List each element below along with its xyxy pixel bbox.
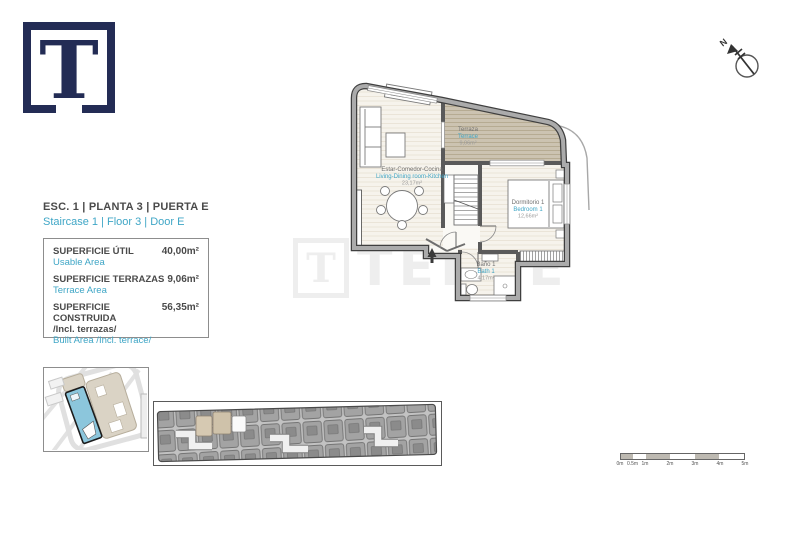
key-plan-drawing	[154, 402, 440, 464]
coffee-table	[386, 133, 405, 157]
scale-bar: 0m 0.5m 1m 2m 3m 4m 5m	[620, 453, 745, 469]
living-area: 23,17m²	[402, 181, 422, 187]
usable-value: 40,00m²	[162, 246, 199, 257]
terrace-slider-door	[442, 122, 445, 148]
scale-segment	[719, 454, 744, 459]
scale-segment	[633, 454, 645, 459]
chair	[415, 187, 424, 196]
built-label-es: SUPERFICIE CONSTRUIDA	[53, 302, 162, 324]
usable-label-en: Usable Area	[53, 257, 199, 268]
logo-bottom-gap	[56, 105, 82, 113]
washbasin	[465, 271, 477, 279]
bath-area: 4,17m²	[477, 276, 494, 282]
terrace-label-en: Terrace Area	[53, 285, 199, 296]
site-plan	[43, 367, 149, 452]
scale-segment	[646, 454, 671, 459]
scale-tick-label: 4m	[717, 461, 724, 467]
toilet	[467, 285, 478, 295]
usable-label-es: SUPERFICIE ÚTIL	[53, 246, 134, 257]
pillow	[553, 184, 562, 202]
scale-segment	[695, 454, 720, 459]
terrace-value: 9,06m²	[167, 274, 199, 285]
floor-plan: Terraza Terrace 9,06m² Estar-Comedor-Coc…	[340, 78, 645, 306]
north-label: N	[718, 37, 729, 49]
site-plan-drawing	[44, 368, 147, 450]
chair	[419, 206, 428, 215]
chair	[398, 221, 407, 230]
plan-sheet: T N ESC. 1 | PLANTA 3 | PUERTA E Stairca…	[0, 0, 800, 533]
terrace-name-es: Terraza	[458, 127, 479, 133]
built-value: 56,35m²	[162, 302, 199, 313]
north-arrow-icon: N	[718, 33, 766, 81]
logo-t-letter: T	[39, 24, 99, 116]
scale-tick-label: 2m	[667, 461, 674, 467]
bedroom-name-en: Bedroom 1	[513, 207, 543, 213]
unit-title-spanish: ESC. 1 | PLANTA 3 | PUERTA E	[43, 200, 209, 215]
terrace-area: 9,06m²	[459, 141, 476, 147]
shelf	[482, 254, 498, 261]
scale-tick-label: 0m	[617, 461, 624, 467]
scale-tick-label: 0.5m	[627, 461, 638, 467]
terrace-label-es: SUPERFICIE TERRAZAS	[53, 274, 164, 285]
area-row-terrace: SUPERFICIE TERRAZAS 9,06m² Terrace Area	[53, 274, 199, 296]
toilet-tank	[461, 284, 466, 295]
room-label-terrace: Terraza Terrace 9,06m²	[458, 127, 479, 147]
built-label-en: Built Area /Incl. terrace/	[53, 335, 199, 346]
scale-segment	[670, 454, 695, 459]
sofa	[360, 107, 381, 167]
bath-name-es: Baño 1	[476, 262, 496, 268]
living-name-en: Living-Dining room-Kitchen	[376, 174, 448, 180]
area-row-built: SUPERFICIE CONSTRUIDA 56,35m² /Incl. ter…	[53, 302, 199, 346]
bedroom-name-es: Dormitorio 1	[512, 200, 545, 206]
living-name-es: Estar-Comedor-Cocina	[381, 167, 443, 173]
dining-table	[387, 191, 418, 222]
nightstand	[556, 230, 565, 238]
pillow	[553, 205, 562, 223]
area-row-usable: SUPERFICIE ÚTIL 40,00m² Usable Area	[53, 246, 199, 268]
scale-bar-segments	[620, 453, 745, 460]
room-label-bath: Baño 1 Bath 1 4,17m²	[476, 262, 496, 282]
chair	[377, 206, 386, 215]
chair	[381, 187, 390, 196]
title-block: ESC. 1 | PLANTA 3 | PUERTA E Staircase 1…	[43, 200, 209, 230]
unit-title-english: Staircase 1 | Floor 3 | Door E	[43, 215, 209, 230]
company-logo: T	[23, 22, 115, 113]
scale-labels: 0m 0.5m 1m 2m 3m 4m 5m	[620, 461, 745, 469]
edge-building	[141, 394, 147, 438]
built-label-es2: /Incl. terrazas/	[53, 324, 199, 335]
highlighted-unit	[196, 412, 246, 436]
bedroom-area: 12,66m²	[518, 214, 538, 220]
bath-name-en: Bath 1	[477, 269, 495, 275]
scale-tick-label: 1m	[642, 461, 649, 467]
nightstand	[556, 170, 565, 178]
shower-drain	[503, 284, 507, 288]
scale-segment	[621, 454, 633, 459]
scale-tick-label: 5m	[742, 461, 749, 467]
building-key-plan	[153, 401, 442, 466]
scale-tick-label: 3m	[692, 461, 699, 467]
terrace-name-en: Terrace	[458, 134, 479, 140]
areas-table: SUPERFICIE ÚTIL 40,00m² Usable Area SUPE…	[43, 238, 209, 338]
